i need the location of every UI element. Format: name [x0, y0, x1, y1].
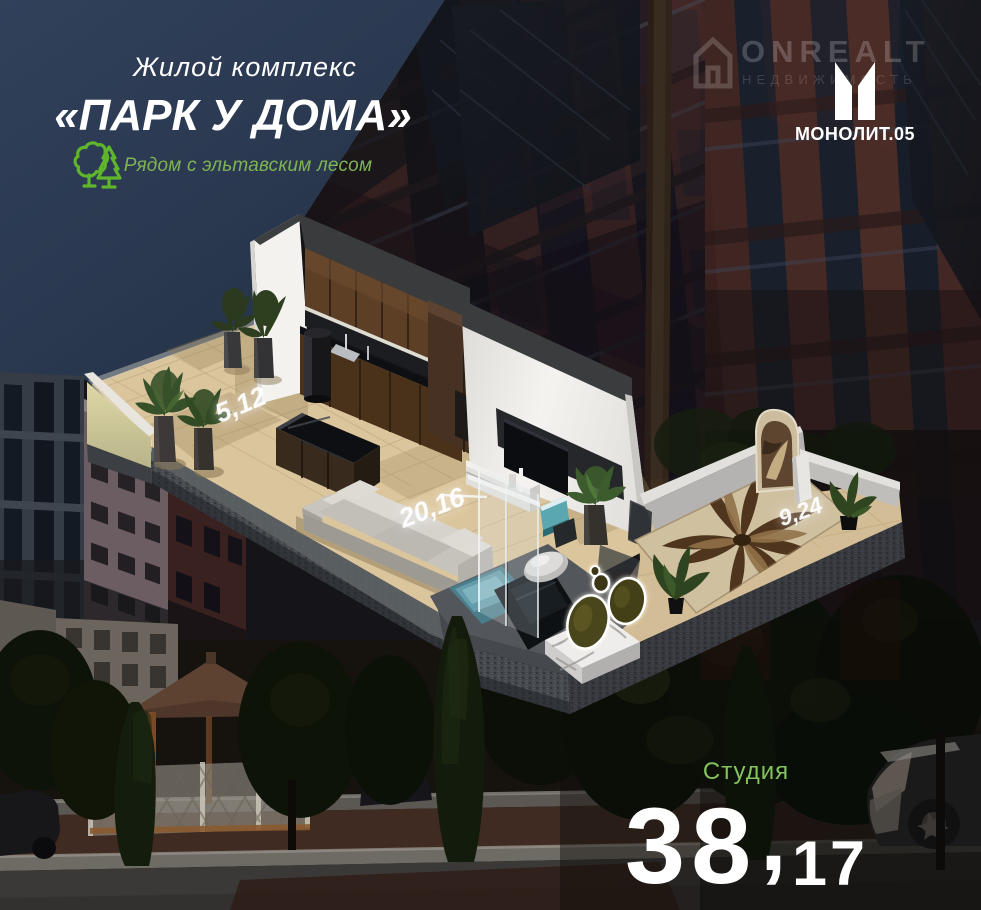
- svg-text:Студия: Студия: [703, 758, 789, 785]
- svg-text:Жилой комплекс: Жилой комплекс: [131, 52, 357, 82]
- svg-text:Рядом с эльтавским лесом: Рядом с эльтавским лесом: [124, 155, 372, 176]
- svg-text:,: ,: [760, 784, 787, 891]
- svg-text:«ПАРК У ДОМА»: «ПАРК У ДОМА»: [54, 91, 411, 140]
- svg-text:МОНОЛИТ.05: МОНОЛИТ.05: [795, 124, 915, 144]
- svg-text:НЕДВИЖИМОСТЬ: НЕДВИЖИМОСТЬ: [742, 72, 917, 87]
- svg-text:38: 38: [625, 785, 757, 906]
- svg-text:17: 17: [792, 829, 868, 899]
